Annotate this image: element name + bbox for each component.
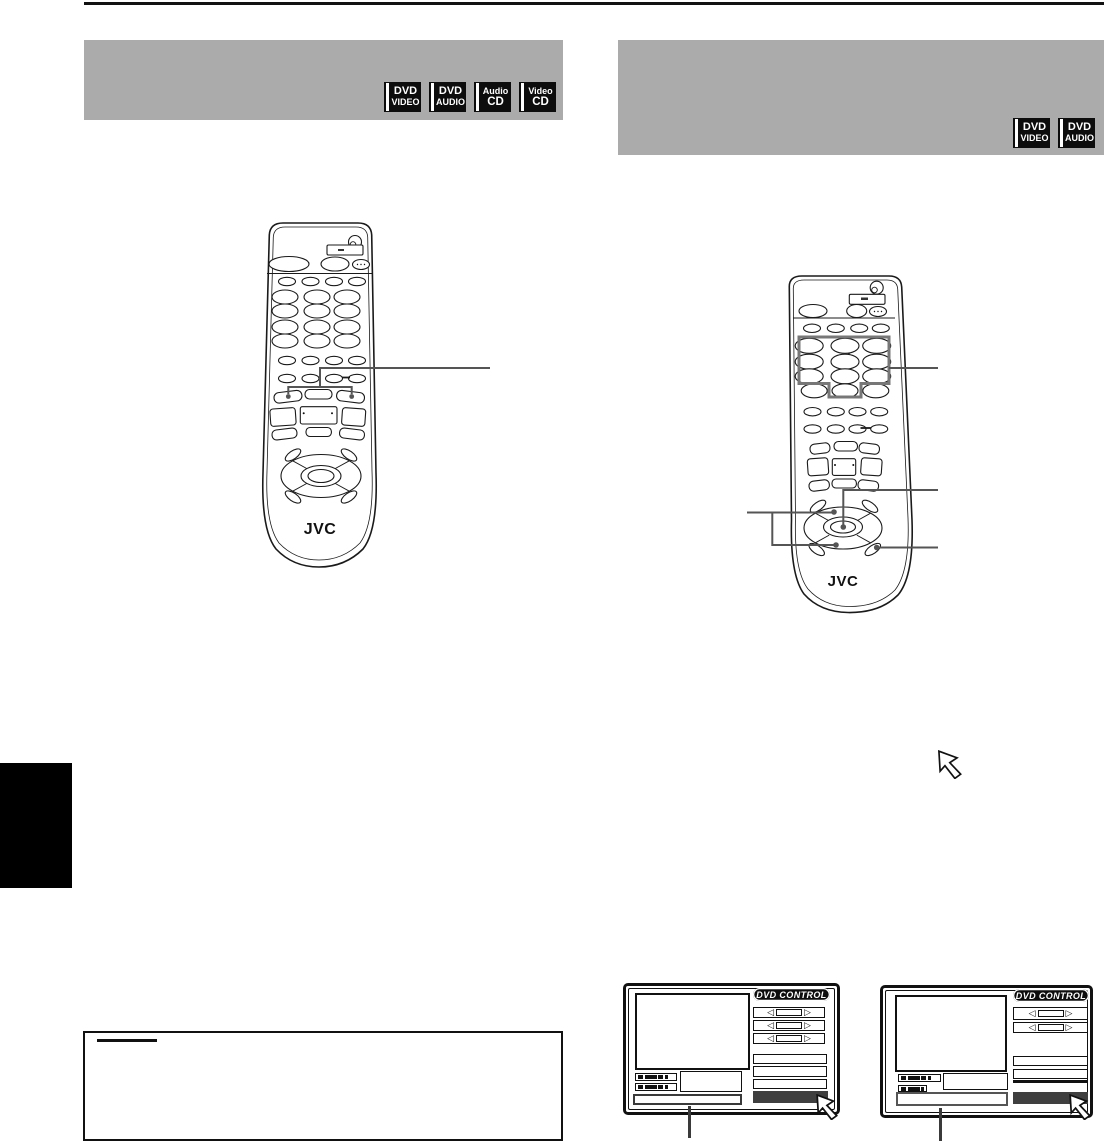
badge-video-cd: Video CD <box>519 82 556 112</box>
disc-badges-left: DVD VIDEO DVD AUDIO Audio CD Video CD <box>384 82 556 112</box>
spin-left-icon: ◁ <box>1029 1009 1036 1018</box>
spin-left-icon: ◁ <box>767 1008 774 1017</box>
callout-dot <box>841 524 847 530</box>
callout-dot <box>349 394 354 399</box>
spin-value-box <box>776 1009 802 1016</box>
manual-page: DVD VIDEO DVD AUDIO Audio CD Video CD DV… <box>0 0 1104 1148</box>
osd-menu-row <box>753 1054 827 1065</box>
brand-logo: JVC <box>304 521 337 538</box>
osd-right-callout-line <box>939 1108 942 1141</box>
badge-dvd-audio: DVD AUDIO <box>429 82 466 112</box>
badge-dvd-audio: DVD AUDIO <box>1058 118 1095 148</box>
key5-bump-mark <box>848 353 850 355</box>
osd-title-badge: DVD CONTROL <box>753 988 830 1001</box>
cursor-arrow-icon <box>935 750 967 779</box>
osd-status-label <box>635 1083 677 1091</box>
section-heading-bar-left: DVD VIDEO DVD AUDIO Audio CD Video CD <box>84 40 563 120</box>
osd-message-bar <box>633 1094 742 1105</box>
osd-menu-row <box>753 1079 827 1089</box>
top-rule <box>84 2 1104 5</box>
osd-status-marks <box>638 1085 674 1089</box>
key5-bump-mark <box>320 303 322 305</box>
spin-right-icon: ▷ <box>804 1034 811 1043</box>
disc-badges-right: DVD VIDEO DVD AUDIO <box>1013 118 1095 148</box>
osd-status-marks <box>638 1075 674 1079</box>
spin-left-icon: ◁ <box>767 1021 774 1030</box>
spin-left-icon: ◁ <box>767 1034 774 1043</box>
spin-value-box <box>776 1022 802 1029</box>
osd-menu-row <box>753 1066 827 1077</box>
spin-left-icon: ◁ <box>1029 1023 1036 1032</box>
osd-spinner-row: ◁ ▷ <box>753 1033 825 1044</box>
osd-screen-left: DVD CONTROL ◁ ▷ ◁ ▷ ◁ ▷ <box>623 983 840 1115</box>
osd-video-preview <box>635 993 750 1070</box>
osd-message-bar <box>896 1092 1008 1105</box>
badge-line: DVD <box>1023 122 1046 133</box>
spin-right-icon: ▷ <box>1066 1023 1073 1032</box>
osd-cursor-icon <box>1068 1094 1094 1120</box>
badge-dvd-video: DVD VIDEO <box>384 82 421 112</box>
callout-dot <box>833 542 839 548</box>
notes-box <box>83 1031 563 1141</box>
badge-line: DVD <box>439 86 462 97</box>
remote-right-illustration: JVC <box>735 268 945 623</box>
standby-button <box>799 305 827 318</box>
osd-status-marks <box>901 1076 938 1080</box>
badge-line: AUDIO <box>436 97 465 108</box>
osd-menu-row <box>1013 1056 1088 1067</box>
osd-status-label <box>898 1085 927 1092</box>
osd-divider-bar <box>1013 1080 1088 1083</box>
mode-switch-label-mark <box>338 249 344 251</box>
osd-cursor-icon <box>815 1094 841 1120</box>
osd-video-preview <box>895 995 1007 1072</box>
spin-right-icon: ▷ <box>804 1021 811 1030</box>
open-close-button <box>321 257 349 271</box>
osd-info-panel <box>943 1073 1008 1090</box>
osd-status-label <box>898 1074 941 1082</box>
badge-line: DVD <box>394 86 417 97</box>
callout-dot <box>831 509 837 515</box>
osd-spinner-row: ◁ ▷ <box>753 1020 825 1031</box>
brand-logo: JVC <box>828 573 859 590</box>
spin-right-icon: ▷ <box>804 1008 811 1017</box>
spin-value-box <box>1038 1024 1064 1031</box>
mode-switch <box>327 245 363 255</box>
badge-line: CD <box>487 97 504 108</box>
spin-value-box <box>1038 1010 1064 1017</box>
spin-value-box <box>776 1035 802 1042</box>
osd-menu-row <box>1013 1069 1088 1079</box>
osd-info-panel <box>680 1071 742 1092</box>
osd-spinner-row: ◁ ▷ <box>1013 1007 1088 1020</box>
spin-right-icon: ▷ <box>1066 1009 1073 1018</box>
osd-left-callout-line <box>688 1106 691 1138</box>
section-heading-bar-right: DVD VIDEO DVD AUDIO <box>618 40 1104 155</box>
chapter-edge-tab <box>0 763 72 888</box>
osd-screen-right: DVD CONTROL ◁ ▷ ◁ ▷ <box>880 985 1093 1118</box>
osd-spinner-row: ◁ ▷ <box>1013 1022 1088 1033</box>
remote-left-illustration: JVC <box>250 218 500 578</box>
mode-switch-label-mark <box>861 298 868 301</box>
badge-audio-cd: Audio CD <box>474 82 511 112</box>
badge-dvd-video: DVD VIDEO <box>1013 118 1050 148</box>
osd-status-marks <box>901 1087 924 1091</box>
osd-title-badge: DVD CONTROL <box>1013 989 1089 1002</box>
badge-line: VIDEO <box>391 97 419 108</box>
osd-status-label <box>635 1073 677 1081</box>
callout-dot <box>286 394 291 399</box>
open-close-button <box>847 305 867 318</box>
badge-line: VIDEO <box>1020 133 1048 144</box>
standby-button <box>269 257 309 272</box>
osd-spinner-row: ◁ ▷ <box>753 1007 825 1018</box>
callout-dot <box>874 545 880 551</box>
badge-line: DVD <box>1068 122 1091 133</box>
badge-line: CD <box>532 97 549 108</box>
notes-heading-underline <box>97 1039 157 1042</box>
badge-line: AUDIO <box>1065 133 1094 144</box>
